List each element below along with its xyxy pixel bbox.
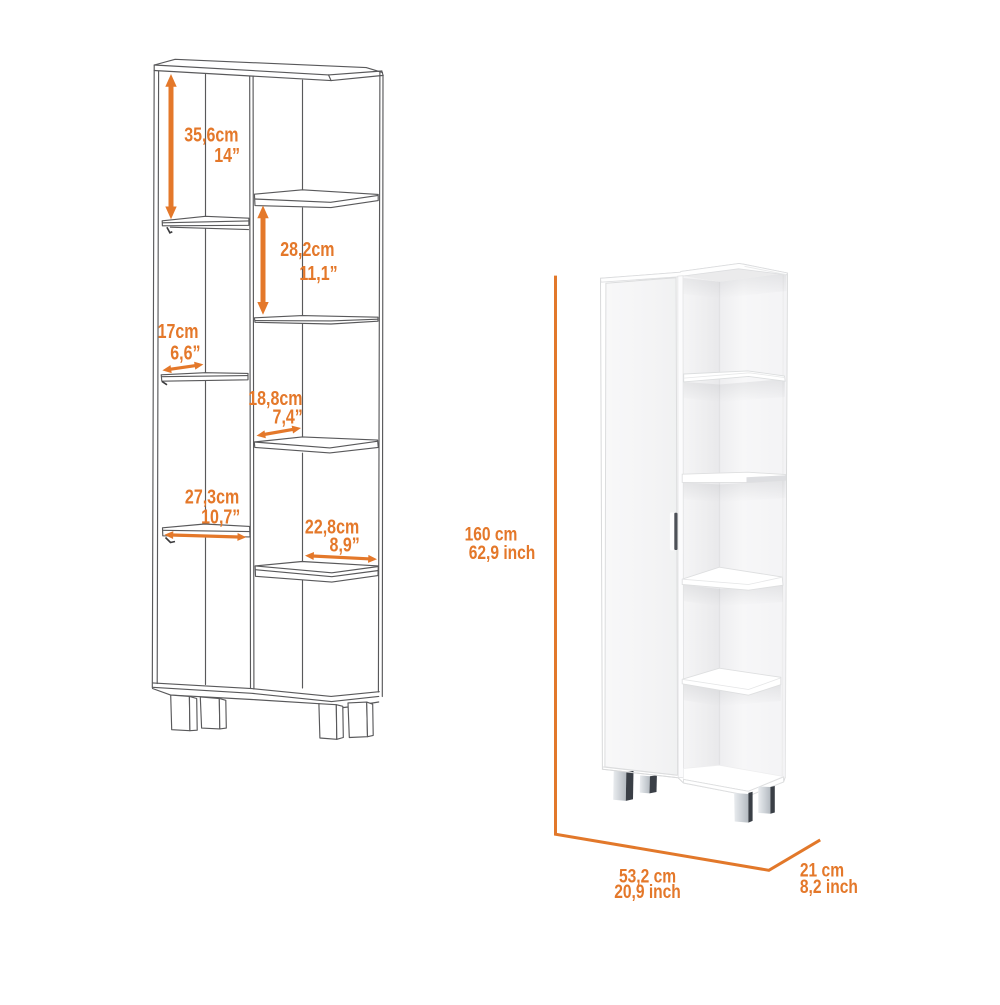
svg-text:17cm: 17cm [158,321,199,343]
svg-text:28,2cm: 28,2cm [280,239,334,261]
svg-text:35,6cm: 35,6cm [184,124,238,146]
svg-text:11,1”: 11,1” [299,262,337,284]
svg-text:8,9”: 8,9” [330,534,360,556]
svg-text:20,9 inch: 20,9 inch [614,881,681,903]
svg-text:6,6”: 6,6” [170,342,200,364]
svg-text:8,2 inch: 8,2 inch [800,875,858,897]
svg-text:62,9 inch: 62,9 inch [469,542,536,564]
svg-text:7,4”: 7,4” [273,406,303,428]
svg-text:10,7”: 10,7” [201,506,240,528]
svg-text:14”: 14” [214,144,240,166]
svg-text:27,3cm: 27,3cm [185,486,239,508]
